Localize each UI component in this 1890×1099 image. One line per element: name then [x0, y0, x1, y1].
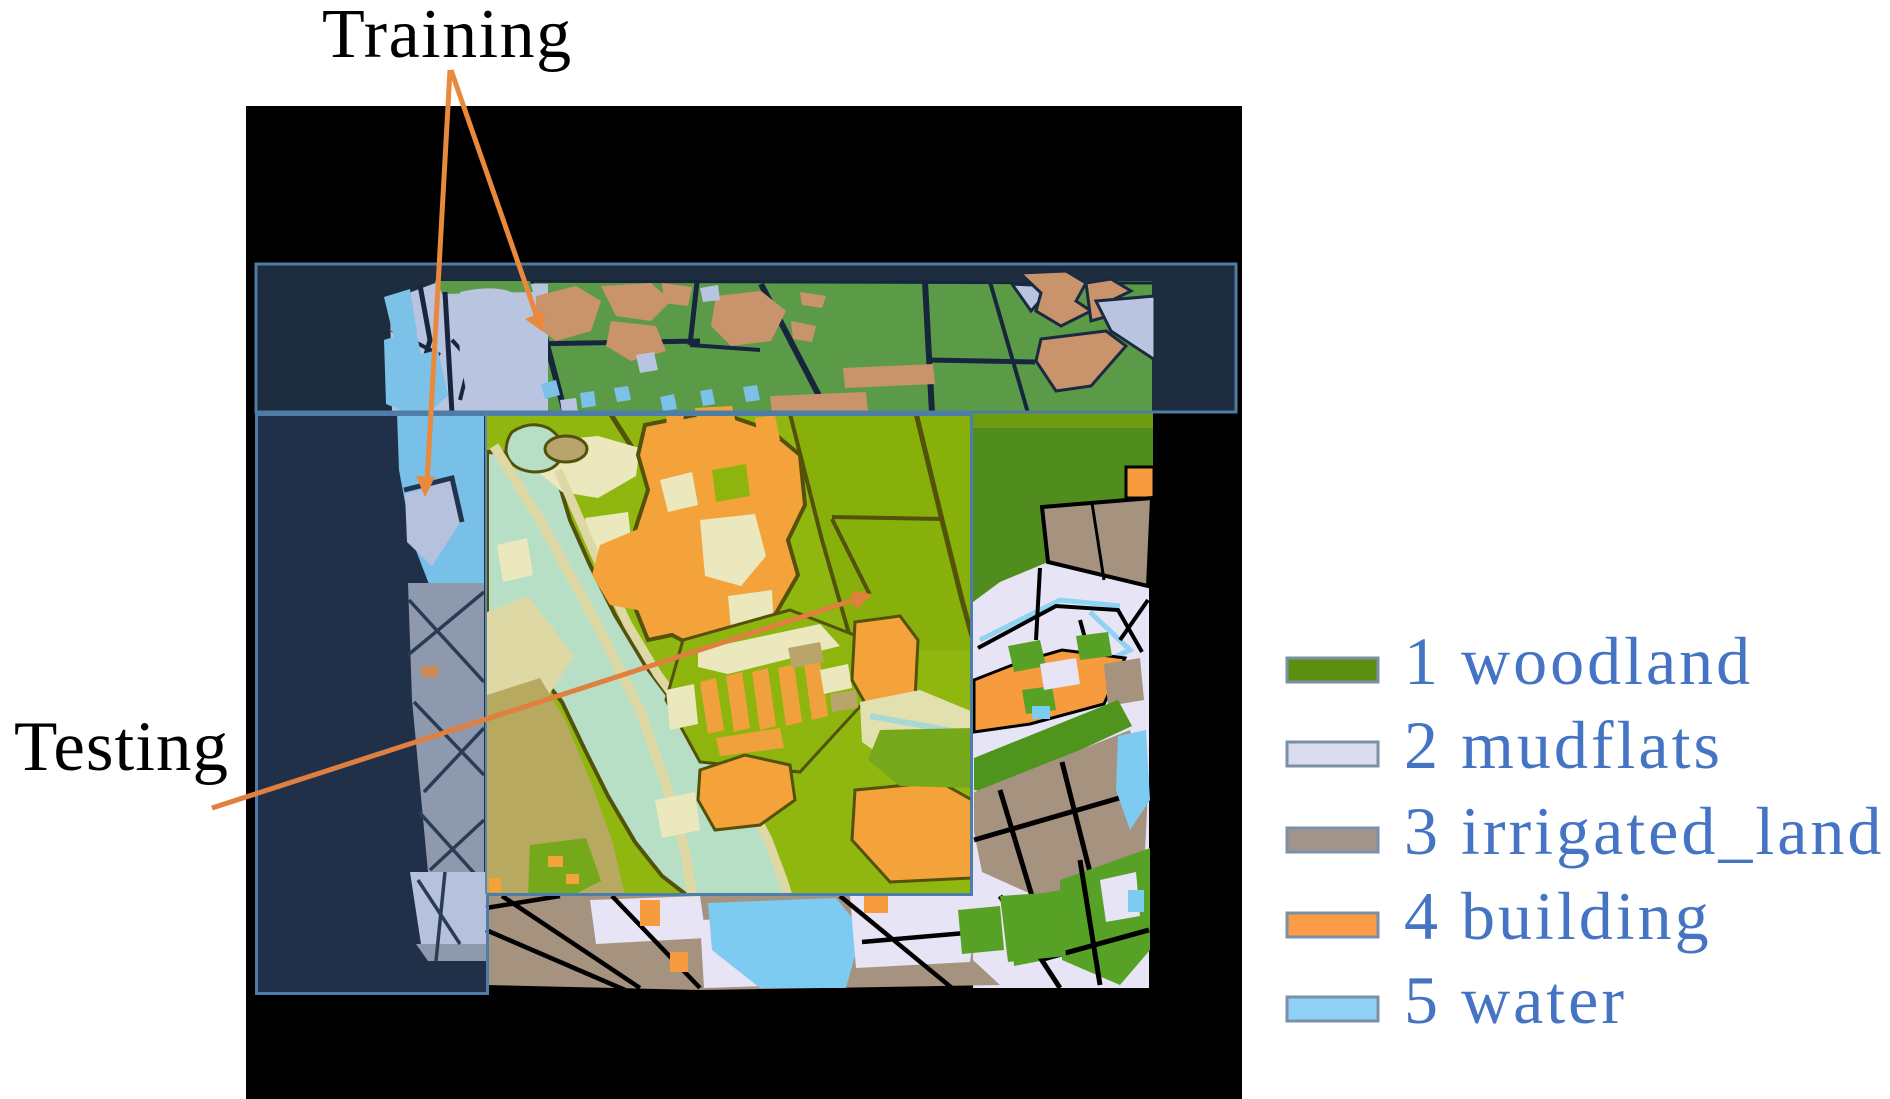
svg-text:1 woodland: 1 woodland: [1404, 623, 1753, 699]
svg-text:Testing: Testing: [14, 708, 229, 786]
svg-text:Training: Training: [322, 0, 573, 73]
svg-text:3 irrigated_land: 3 irrigated_land: [1404, 793, 1884, 869]
svg-text:2 mudflats: 2 mudflats: [1404, 707, 1723, 783]
svg-text:4 building: 4 building: [1404, 878, 1712, 954]
svg-text:5 water: 5 water: [1404, 962, 1627, 1038]
